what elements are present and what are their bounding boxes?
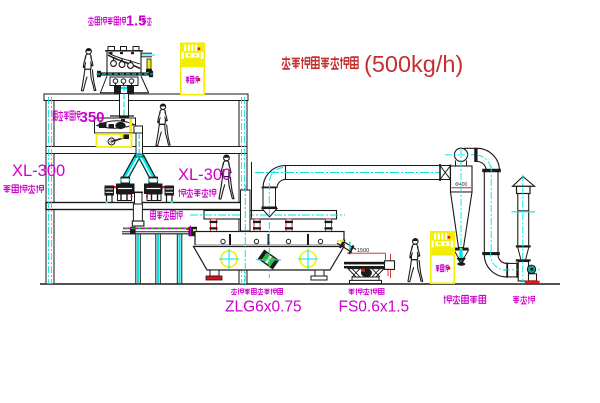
svg-text:XL-300: XL-300: [12, 162, 65, 180]
svg-text:FS0.6x1.5: FS0.6x1.5: [339, 299, 410, 316]
svg-text:XL-300: XL-300: [178, 166, 231, 184]
svg-text:ZLG6x0.75: ZLG6x0.75: [225, 299, 302, 316]
svg-text:(500kg/h): (500kg/h): [364, 51, 463, 77]
svg-text:1500: 1500: [357, 248, 369, 254]
svg-text:1.5: 1.5: [126, 14, 146, 30]
svg-text:350: 350: [80, 109, 105, 126]
